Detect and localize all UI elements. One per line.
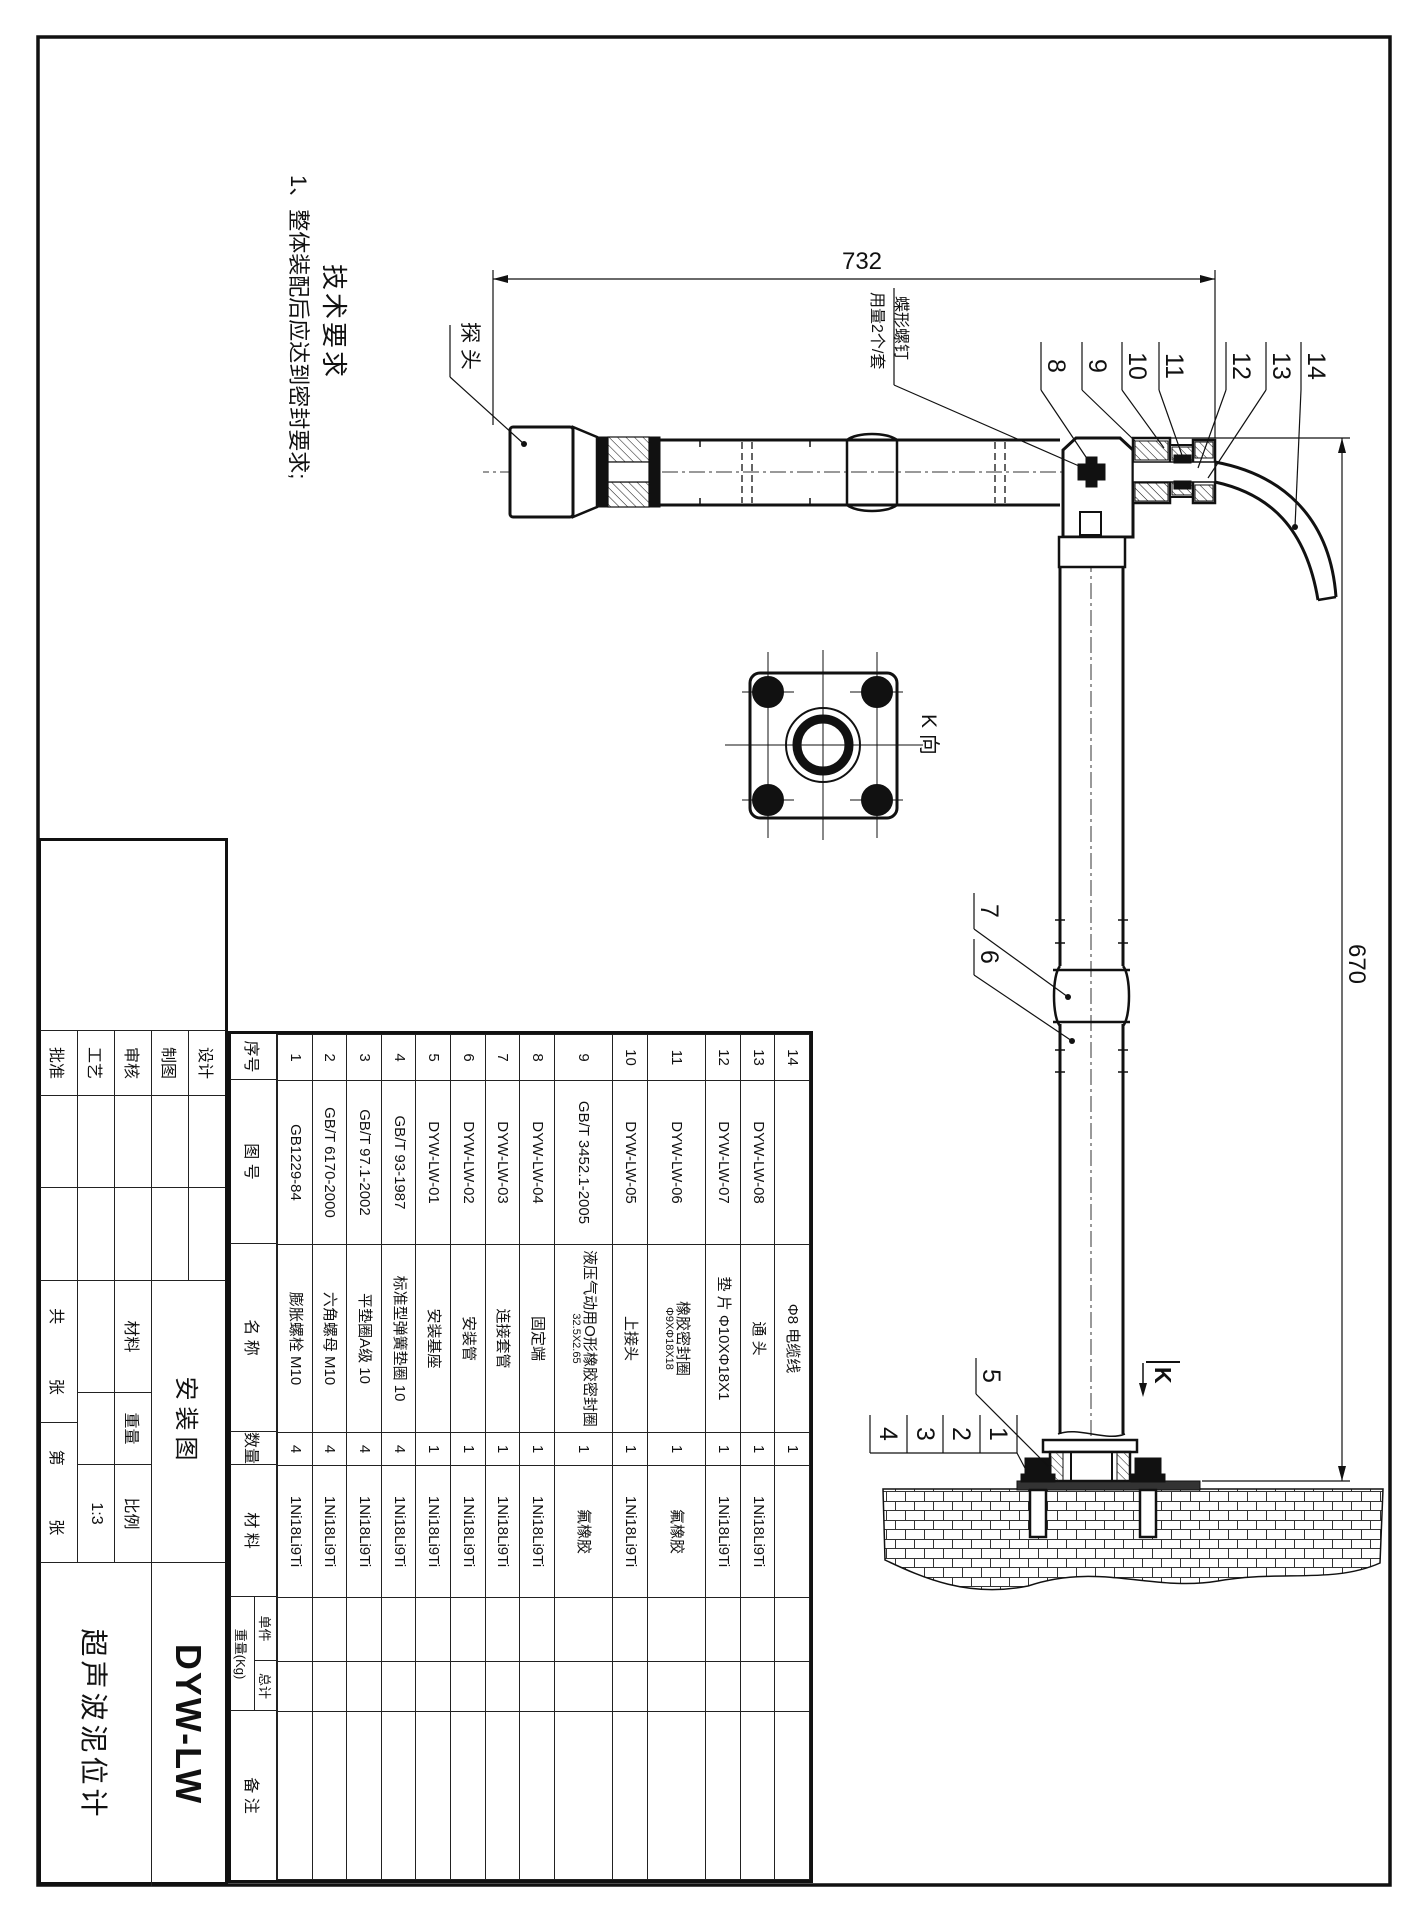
sheet-total-cell: 共 张: [40, 1281, 77, 1423]
part-name: 垫 片 Φ10XΦ18X1: [706, 1245, 741, 1433]
callout-3: 3: [910, 1417, 939, 1451]
part-qty: 1: [520, 1433, 555, 1466]
part-code: DYW-LW-01: [416, 1081, 451, 1245]
k-view-label: K 向: [915, 714, 945, 755]
part-code: DYW-LW-07: [706, 1081, 741, 1245]
part-name: 安装管: [451, 1245, 486, 1433]
part-name: Φ8 电缆线: [775, 1245, 810, 1433]
table-row: 9 GB/T 3452.1-2005 液压气动用O形橡胶密封圈 32.5X2.6…: [554, 1035, 612, 1880]
table-row: 12 DYW-LW-07 垫 片 Φ10XΦ18X1 1 1Ni18Li9Ti: [706, 1035, 741, 1880]
part-weight-total: [647, 1662, 705, 1712]
part-name: 标准型弹簧垫圈 10: [381, 1245, 416, 1433]
tech-req-item: 1、整体装配后应达到密封要求;: [284, 175, 316, 479]
probe-drawing: [510, 427, 660, 517]
part-name-line1: 安装管: [460, 1247, 476, 1430]
callout-9: 9: [1082, 349, 1111, 383]
callout-11: 11: [1159, 349, 1188, 383]
part-name: 平垫圈A级 10: [347, 1245, 382, 1433]
callout-8: 8: [1041, 349, 1070, 383]
header-weight-total: 总计: [255, 1661, 276, 1711]
sign-label-check: 审核: [114, 1031, 151, 1096]
part-qty: 1: [485, 1433, 520, 1466]
part-remark: [647, 1712, 705, 1880]
part-name-line1: 橡胶密封圈: [674, 1247, 690, 1430]
sheet-label2: 张: [47, 1519, 71, 1535]
part-material: 1Ni18Li9Ti: [485, 1466, 520, 1598]
part-seq: 2: [312, 1035, 347, 1081]
parts-table: 14 Φ8 电缆线 1 13 DYW-LW-08: [228, 1031, 813, 1883]
wing-screw-label-line1: 蝶形螺钉: [891, 296, 915, 360]
part-weight-unit: [416, 1598, 451, 1662]
part-code: GB1229-84: [278, 1081, 313, 1245]
date-cell: [77, 1188, 114, 1281]
part-qty: 1: [451, 1433, 486, 1466]
part-weight-total: [775, 1662, 810, 1712]
part-weight-unit: [775, 1598, 810, 1662]
material-label: 材料: [114, 1281, 151, 1393]
part-seq: 1: [278, 1035, 313, 1081]
table-row: 5 DYW-LW-01 安装基座 1 1Ni18Li9Ti: [416, 1035, 451, 1880]
header-seq: 序号: [230, 1034, 276, 1080]
part-weight-total: [312, 1662, 347, 1712]
part-qty: 1: [706, 1433, 741, 1466]
header-qty: 数量: [230, 1432, 276, 1465]
part-material: 1Ni18Li9Ti: [706, 1466, 741, 1598]
part-name-line1: 膨胀螺栓 M10: [287, 1247, 303, 1430]
k-view-detail: [725, 650, 923, 840]
part-code: DYW-LW-03: [485, 1081, 520, 1245]
table-row: 1 GB1229-84 膨胀螺栓 M10 4 1Ni18Li9Ti: [278, 1035, 313, 1880]
sign-cell: [151, 1096, 188, 1188]
part-seq: 3: [347, 1035, 382, 1081]
no-label: 第: [47, 1450, 71, 1466]
part-weight-unit: [706, 1598, 741, 1662]
part-weight-unit: [381, 1598, 416, 1662]
part-name: 安装基座: [416, 1245, 451, 1433]
wing-screw-label-line2: 用量2个/套: [867, 292, 891, 369]
part-code: DYW-LW-04: [520, 1081, 555, 1245]
table-row: 7 DYW-LW-03 连接套管 1 1Ni18Li9Ti: [485, 1035, 520, 1880]
part-weight-total: [613, 1662, 648, 1712]
part-name: 通 头: [740, 1245, 775, 1433]
drawing-type-cell: 安装图: [151, 1281, 225, 1563]
callout-7: 7: [974, 894, 1003, 928]
base-drawing: [1043, 1440, 1137, 1481]
sign-cell: [40, 1096, 77, 1188]
header-weight-unit: 单件: [255, 1597, 276, 1661]
part-code: DYW-LW-06: [647, 1081, 705, 1245]
table-row: 14 Φ8 电缆线 1: [775, 1035, 810, 1880]
part-code: GB/T 6170-2000: [312, 1081, 347, 1245]
sign-label-process: 工艺: [77, 1031, 114, 1096]
part-name: 固定端: [520, 1245, 555, 1433]
total-label: 共: [47, 1308, 71, 1324]
part-remark: [706, 1712, 741, 1880]
part-weight-unit: [554, 1598, 612, 1662]
part-material: 1Ni18Li9Ti: [740, 1466, 775, 1598]
part-weight-unit: [451, 1598, 486, 1662]
table-row: 4 GB/T 93-1987 标准型弹簧垫圈 10 4 1Ni18Li9Ti: [381, 1035, 416, 1880]
callout-4: 4: [873, 1417, 902, 1451]
callout-14: 14: [1301, 349, 1330, 383]
part-remark: [740, 1712, 775, 1880]
part-seq: 6: [451, 1035, 486, 1081]
part-material: 1Ni18Li9Ti: [520, 1466, 555, 1598]
part-remark: [278, 1712, 313, 1880]
part-weight-unit: [520, 1598, 555, 1662]
drawing-sheet: 技术要求 1、整体装配后应达到密封要求; 732 670 探 头 蝶形螺钉 用量…: [0, 0, 1428, 1919]
sheet-label: 张: [47, 1379, 71, 1395]
part-material: 1Ni18Li9Ti: [613, 1466, 648, 1598]
part-name-line1: 上接头: [622, 1247, 638, 1430]
part-material: 1Ni18Li9Ti: [347, 1466, 382, 1598]
wall-drawing: [883, 1481, 1383, 1590]
gland-stack-drawing: [1133, 438, 1336, 600]
part-remark: [554, 1712, 612, 1880]
part-weight-total: [485, 1662, 520, 1712]
part-remark: [520, 1712, 555, 1880]
part-material: 1Ni18Li9Ti: [416, 1466, 451, 1598]
part-qty: 1: [613, 1433, 648, 1466]
parts-list: 14 Φ8 电缆线 1 13 DYW-LW-08: [277, 1034, 810, 1880]
part-name-line1: 安装基座: [425, 1247, 441, 1430]
date-cell: [40, 1188, 77, 1281]
part-remark: [416, 1712, 451, 1880]
part-name: 液压气动用O形橡胶密封圈 32.5X2.65: [554, 1245, 612, 1433]
dim-732-value: 732: [832, 248, 892, 276]
callout-5: 5: [976, 1359, 1005, 1393]
part-name: 膨胀螺栓 M10: [278, 1245, 313, 1433]
sign-cell: [114, 1096, 151, 1188]
part-name-line1: 标准型弹簧垫圈 10: [391, 1247, 407, 1430]
sheet-no-cell: 第 张: [40, 1423, 77, 1563]
part-weight-total: [381, 1662, 416, 1712]
table-row: 6 DYW-LW-02 安装管 1 1Ni18Li9Ti: [451, 1035, 486, 1880]
model-cell: DYW-LW: [151, 1563, 225, 1886]
part-remark: [381, 1712, 416, 1880]
part-code: DYW-LW-02: [451, 1081, 486, 1245]
scale-value: 1:3: [77, 1465, 114, 1563]
part-weight-unit: [613, 1598, 648, 1662]
revision-box: [40, 841, 225, 1031]
part-weight-unit: [278, 1598, 313, 1662]
part-seq: 14: [775, 1035, 810, 1081]
part-qty: 1: [554, 1433, 612, 1466]
part-material: 氟橡胶: [647, 1466, 705, 1598]
part-weight-total: [451, 1662, 486, 1712]
parts-table-header: 序号 图 号 名 称 数量 材 料 单件 总计 重量(Kg) 备 注: [230, 1034, 277, 1880]
elbow-drawing: [1059, 438, 1133, 567]
part-material: 1Ni18Li9Ti: [451, 1466, 486, 1598]
part-material: 1Ni18Li9Ti: [381, 1466, 416, 1598]
part-name-line1: 固定端: [529, 1247, 545, 1430]
sign-label-design: 设计: [188, 1031, 225, 1096]
callout-10: 10: [1122, 349, 1151, 383]
product-name-cell: 超声波泥位计: [40, 1563, 151, 1886]
part-qty: 4: [347, 1433, 382, 1466]
part-seq: 13: [740, 1035, 775, 1081]
part-name-line1: 平垫圈A级 10: [356, 1247, 372, 1430]
part-name: 橡胶密封圈 Φ9XΦ18X18: [647, 1245, 705, 1433]
part-code: GB/T 3452.1-2005: [554, 1081, 612, 1245]
part-weight-unit: [485, 1598, 520, 1662]
table-row: 2 GB/T 6170-2000 六角螺母 M10 4 1Ni18Li9Ti: [312, 1035, 347, 1880]
part-name: 六角螺母 M10: [312, 1245, 347, 1433]
table-row: 13 DYW-LW-08 通 头 1 1Ni18Li9Ti: [740, 1035, 775, 1880]
part-weight-unit: [647, 1598, 705, 1662]
part-name: 上接头: [613, 1245, 648, 1433]
part-weight-total: [278, 1662, 313, 1712]
k-arrow-label: K: [1149, 1367, 1176, 1384]
part-name-line1: Φ8 电缆线: [784, 1247, 800, 1430]
date-cell: [188, 1188, 225, 1281]
date-cell: [151, 1188, 188, 1281]
dim-670-value: 670: [1342, 936, 1370, 992]
part-qty: 4: [278, 1433, 313, 1466]
part-name-line1: 垫 片 Φ10XΦ18X1: [715, 1247, 731, 1430]
sign-label-approve: 批准: [40, 1031, 77, 1096]
part-qty: 1: [740, 1433, 775, 1466]
part-name-line1: 连接套管: [495, 1247, 511, 1430]
part-seq: 4: [381, 1035, 416, 1081]
part-weight-total: [347, 1662, 382, 1712]
parts-rows: 14 Φ8 电缆线 1 13 DYW-LW-08: [278, 1035, 810, 1880]
part-name: 连接套管: [485, 1245, 520, 1433]
header-name: 名 称: [230, 1244, 276, 1432]
part-code: DYW-LW-05: [613, 1081, 648, 1245]
scale-label: 比例: [114, 1465, 151, 1563]
material-value: [77, 1281, 114, 1393]
header-weight-block: 单件 总计 重量(Kg): [230, 1597, 276, 1711]
part-name-line1: 通 头: [750, 1247, 766, 1430]
part-qty: 4: [312, 1433, 347, 1466]
part-code: [775, 1081, 810, 1245]
header-remark: 备 注: [230, 1711, 276, 1880]
part-weight-total: [706, 1662, 741, 1712]
part-seq: 10: [613, 1035, 648, 1081]
page: 技术要求 1、整体装配后应达到密封要求; 732 670 探 头 蝶形螺钉 用量…: [0, 0, 1428, 1919]
part-weight-unit: [740, 1598, 775, 1662]
part-weight-total: [554, 1662, 612, 1712]
part-weight-unit: [312, 1598, 347, 1662]
part-remark: [347, 1712, 382, 1880]
table-row: 8 DYW-LW-04 固定端 1 1Ni18Li9Ti: [520, 1035, 555, 1880]
part-name-line2: Φ9XΦ18X18: [663, 1247, 675, 1430]
part-remark: [451, 1712, 486, 1880]
part-material: [775, 1466, 810, 1598]
part-weight-unit: [347, 1598, 382, 1662]
part-seq: 9: [554, 1035, 612, 1081]
part-remark: [485, 1712, 520, 1880]
callout-13: 13: [1266, 349, 1295, 383]
tech-req-heading: 技术要求: [317, 264, 354, 380]
callout-1: 1: [983, 1417, 1012, 1451]
part-remark: [775, 1712, 810, 1880]
part-code: DYW-LW-08: [740, 1081, 775, 1245]
part-remark: [312, 1712, 347, 1880]
part-name-line1: 液压气动用O形橡胶密封圈: [581, 1247, 597, 1430]
part-code: GB/T 97.1-2002: [347, 1081, 382, 1245]
weight-label: 重量: [114, 1393, 151, 1465]
header-weight: 重量(Kg): [230, 1597, 254, 1711]
part-weight-total: [416, 1662, 451, 1712]
table-row: 11 DYW-LW-06 橡胶密封圈 Φ9XΦ18X18 1 氟橡胶: [647, 1035, 705, 1880]
callout-12: 12: [1226, 349, 1255, 383]
title-block: 设计 制图 审核 工艺 批准 安装图 材料 重量 比例 1:3 共 张 第 张 …: [38, 838, 228, 1885]
part-weight-total: [740, 1662, 775, 1712]
part-seq: 12: [706, 1035, 741, 1081]
part-code: GB/T 93-1987: [381, 1081, 416, 1245]
part-qty: 1: [647, 1433, 705, 1466]
sign-cell: [188, 1096, 225, 1188]
part-seq: 11: [647, 1035, 705, 1081]
part-qty: 4: [381, 1433, 416, 1466]
part-qty: 1: [416, 1433, 451, 1466]
callout-6: 6: [974, 940, 1003, 974]
part-seq: 5: [416, 1035, 451, 1081]
table-row: 10 DYW-LW-05 上接头 1 1Ni18Li9Ti: [613, 1035, 648, 1880]
callout-2: 2: [946, 1417, 975, 1451]
part-name-line1: 六角螺母 M10: [322, 1247, 338, 1430]
part-weight-total: [520, 1662, 555, 1712]
header-code: 图 号: [230, 1080, 276, 1244]
part-material: 氟橡胶: [554, 1466, 612, 1598]
part-qty: 1: [775, 1433, 810, 1466]
table-row: 3 GB/T 97.1-2002 平垫圈A级 10 4 1Ni18Li9Ti: [347, 1035, 382, 1880]
date-cell: [114, 1188, 151, 1281]
part-remark: [613, 1712, 648, 1880]
part-material: 1Ni18Li9Ti: [312, 1466, 347, 1598]
probe-label: 探 头: [456, 322, 486, 370]
weight-value: [77, 1393, 114, 1465]
part-name-line2: 32.5X2.65: [570, 1247, 582, 1430]
part-material: 1Ni18Li9Ti: [278, 1466, 313, 1598]
header-material: 材 料: [230, 1465, 276, 1597]
part-seq: 7: [485, 1035, 520, 1081]
sign-label-draw: 制图: [151, 1031, 188, 1096]
part-seq: 8: [520, 1035, 555, 1081]
sign-cell: [77, 1096, 114, 1188]
